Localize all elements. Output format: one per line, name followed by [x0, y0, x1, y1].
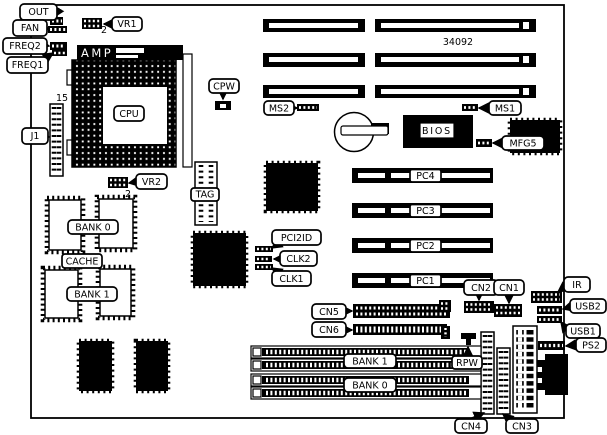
keyboard-connector	[537, 354, 568, 395]
svg-text:CN5: CN5	[319, 307, 339, 318]
svg-text:USB1: USB1	[570, 327, 596, 338]
pci-slot-pc4: PC4	[352, 168, 493, 183]
isa-slot-1	[263, 19, 536, 32]
pci-slot-pc2: PC2	[352, 238, 493, 253]
svg-text:IR: IR	[572, 280, 582, 291]
svg-text:TAG: TAG	[195, 190, 215, 201]
simm-bank1-label: BANK 1	[352, 357, 387, 368]
svg-text:J1: J1	[30, 131, 40, 142]
power-connector	[513, 326, 537, 413]
isa-slot-2	[263, 53, 536, 67]
pci2id-label: PCI2ID	[281, 233, 312, 244]
rpw-jumper	[461, 333, 476, 339]
vr1-header	[82, 18, 102, 29]
svg-text:PS2: PS2	[582, 341, 600, 352]
svg-text:MFG5: MFG5	[509, 139, 536, 150]
j1-connector	[50, 104, 63, 176]
cache-label: CACHE	[66, 257, 99, 268]
pci-slot-pc3: PC3	[352, 203, 493, 218]
svg-text:CN4: CN4	[461, 422, 481, 433]
cn1-header	[494, 304, 522, 317]
svg-text:USB2: USB2	[575, 302, 601, 313]
svg-text:PC1: PC1	[416, 276, 434, 287]
svg-text:PC2: PC2	[416, 241, 434, 252]
svg-text:FAN: FAN	[21, 23, 39, 34]
vr1-pin-number: 2	[101, 25, 107, 36]
svg-text:PC4: PC4	[416, 171, 434, 182]
ps2-jumper	[538, 341, 565, 350]
cache-bank0-label: BANK 0	[75, 223, 110, 234]
cpu-label: CPU	[119, 109, 138, 120]
svg-text:CPW: CPW	[213, 82, 235, 93]
svg-text:FREQ1: FREQ1	[12, 60, 44, 71]
svg-text:CN1: CN1	[499, 283, 519, 294]
svg-text:CN6: CN6	[319, 325, 339, 336]
vr2-header	[108, 177, 128, 188]
bios-label: BIOS	[422, 126, 452, 137]
svg-text:FREQ2: FREQ2	[9, 41, 41, 52]
j1-pin-count: 15	[56, 93, 68, 104]
cn5-header	[353, 304, 450, 318]
svg-text:MS1: MS1	[495, 104, 515, 115]
svg-text:RPW: RPW	[456, 358, 478, 369]
svg-text:MS2: MS2	[269, 104, 289, 115]
diagram-canvas: 34092 AMP CPU OUT FAN FREQ2 FREQ1	[0, 0, 607, 435]
part-number: 34092	[443, 37, 473, 48]
clk1-label: CLK1	[279, 274, 303, 285]
callout-cn5: CN5	[312, 304, 450, 319]
simm-bank0-label: BANK 0	[352, 381, 387, 392]
svg-text:VR1: VR1	[117, 19, 136, 30]
motherboard-diagram: 34092 AMP CPU OUT FAN FREQ2 FREQ1	[0, 0, 607, 435]
chipset-qfp-1	[266, 163, 318, 211]
cpu-socket: AMP CPU	[67, 45, 192, 167]
cn2-header	[464, 301, 494, 313]
ir-header	[531, 291, 562, 303]
isa-slot-3	[263, 85, 536, 98]
chipset-qfp-2	[193, 233, 246, 286]
tag-chip: TAG	[191, 162, 219, 225]
clk2-label: CLK2	[286, 254, 310, 265]
svg-text:PC3: PC3	[416, 206, 434, 217]
cn4-connector	[481, 332, 494, 414]
svg-text:VR2: VR2	[142, 177, 161, 188]
small-header-1	[439, 300, 451, 312]
cache-bank1-label: BANK 1	[74, 290, 109, 301]
isa-slots	[263, 19, 536, 98]
amp-label: AMP	[81, 46, 113, 60]
socket-shadow	[183, 54, 192, 167]
svg-text:CN2: CN2	[471, 283, 491, 294]
callout-cn6: CN6	[312, 322, 447, 337]
svg-text:CN3: CN3	[512, 422, 532, 433]
svg-text:OUT: OUT	[28, 7, 48, 18]
bios-chip: BIOS	[403, 115, 473, 148]
